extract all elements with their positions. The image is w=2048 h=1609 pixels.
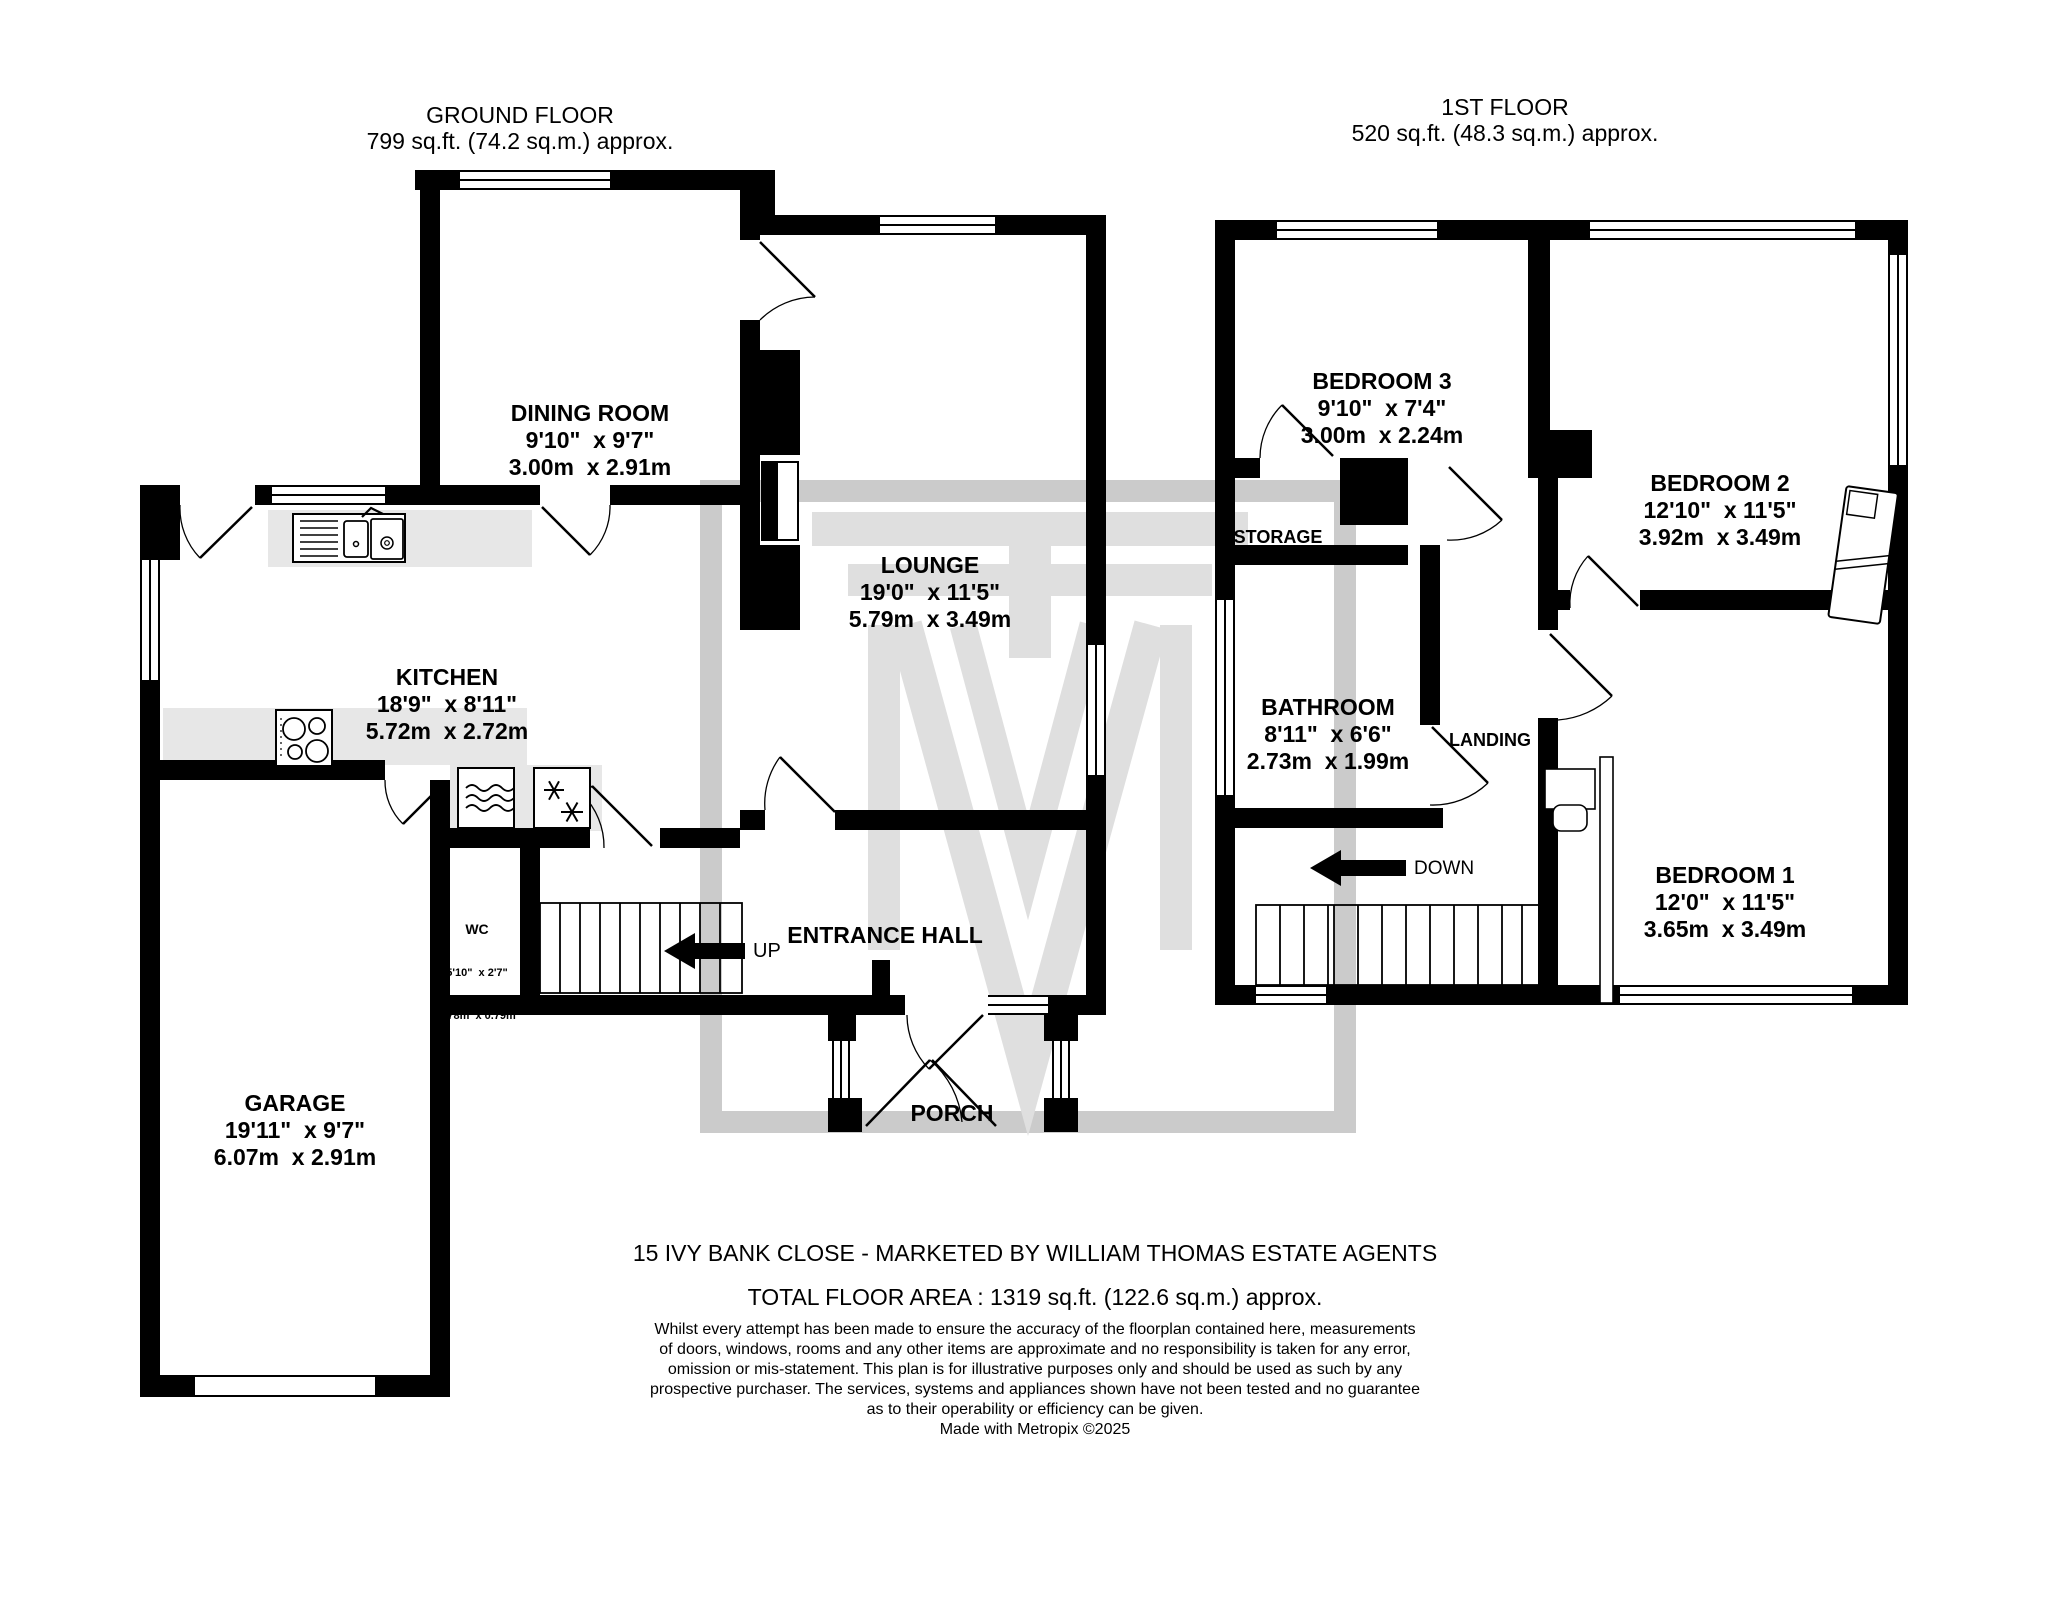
floorplan-canvas: GROUND FLOOR799 sq.ft. (74.2 sq.m.) appr… bbox=[0, 0, 2048, 1609]
freezer-icon bbox=[534, 768, 590, 828]
hob-icon bbox=[276, 710, 332, 766]
room-label-storage: STORAGE bbox=[1234, 487, 1323, 587]
stairs-first bbox=[1256, 905, 1540, 985]
disclaimer-line-1: Whilst every attempt has been made to en… bbox=[654, 1320, 1415, 1340]
stairs-up-label: UP bbox=[753, 940, 781, 963]
room-label-porch: PORCH bbox=[910, 1046, 993, 1181]
address-line: 15 IVY BANK CLOSE - MARKETED BY WILLIAM … bbox=[633, 1240, 1437, 1267]
fireplace-icon bbox=[762, 462, 798, 540]
stairs-down-label: DOWN bbox=[1414, 858, 1474, 880]
disclaimer-line-3: omission or mis-statement. This plan is … bbox=[668, 1360, 1402, 1380]
room-label-bedroom3: BEDROOM 39'10" x 7'4"3.00m x 2.24m bbox=[1301, 314, 1463, 503]
first-floor-title: 1ST FLOOR520 sq.ft. (48.3 sq.m.) approx. bbox=[1352, 42, 1659, 198]
room-label-lounge: LOUNGE19'0" x 11'5"5.79m x 3.49m bbox=[849, 498, 1011, 687]
room-label-bedroom1: BEDROOM 112'0" x 11'5"3.65m x 3.49m bbox=[1644, 808, 1806, 997]
room-label-wc: WC 5'10" x 2'7" 1.78m x 0.79m bbox=[438, 892, 516, 1053]
room-label-kitchen: KITCHEN18'9" x 8'11"5.72m x 2.72m bbox=[366, 610, 528, 799]
disclaimer-line-4: prospective purchaser. The services, sys… bbox=[650, 1380, 1420, 1400]
room-label-bedroom2: BEDROOM 212'10" x 11'5"3.92m x 3.49m bbox=[1639, 416, 1801, 605]
disclaimer-line-2: of doors, windows, rooms and any other i… bbox=[659, 1340, 1410, 1360]
sink-icon bbox=[293, 508, 405, 562]
disclaimer-line-5: as to their operability or efficiency ca… bbox=[867, 1400, 1204, 1420]
room-label-landing: LANDING bbox=[1449, 690, 1531, 790]
down-arrow-icon bbox=[1310, 850, 1406, 886]
room-label-dining: DINING ROOM9'10" x 9'7"3.00m x 2.91m bbox=[509, 346, 671, 535]
metropix-credit: Made with Metropix ©2025 bbox=[940, 1420, 1131, 1440]
room-label-entrance-hall: ENTRANCE HALL bbox=[787, 868, 983, 1003]
ground-floor-title: GROUND FLOOR799 sq.ft. (74.2 sq.m.) appr… bbox=[367, 50, 674, 206]
total-floor-area: TOTAL FLOOR AREA : 1319 sq.ft. (122.6 sq… bbox=[748, 1284, 1323, 1311]
room-label-garage: GARAGE19'11" x 9'7"6.07m x 2.91m bbox=[214, 1036, 376, 1225]
room-label-bathroom: BATHROOM8'11" x 6'6"2.73m x 1.99m bbox=[1247, 640, 1409, 829]
